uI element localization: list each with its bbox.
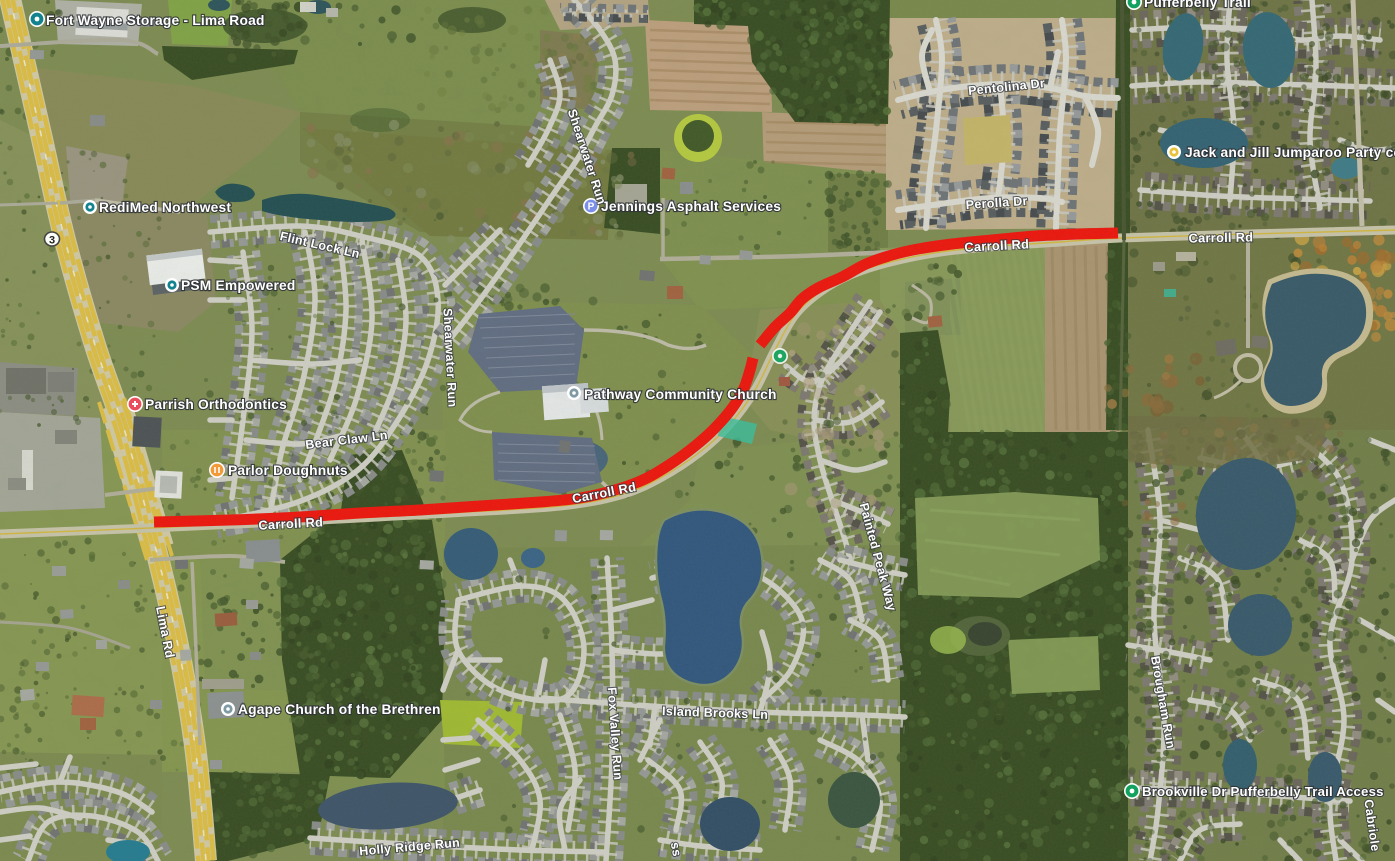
svg-text:Parlor Doughnuts: Parlor Doughnuts (228, 463, 348, 478)
svg-text:PSM Empowered: PSM Empowered (181, 278, 296, 293)
svg-text:P: P (588, 202, 595, 213)
svg-text:Parrish Orthodontics: Parrish Orthodontics (145, 397, 287, 412)
svg-text:Jack and Jill Jumparoo Party c: Jack and Jill Jumparoo Party central (1185, 145, 1395, 160)
svg-text:Brookville Dr Pufferbelly Trai: Brookville Dr Pufferbelly Trail Access (1142, 784, 1384, 799)
svg-text:RediMed Northwest: RediMed Northwest (99, 200, 231, 215)
svg-text:3: 3 (49, 235, 55, 247)
svg-text:Agape Church of the Brethren: Agape Church of the Brethren (238, 702, 441, 717)
svg-text:Pathway Community Church: Pathway Community Church (584, 387, 777, 402)
svg-text:ss: ss (668, 841, 684, 858)
svg-text:Pufferbelly Trail: Pufferbelly Trail (1144, 0, 1251, 10)
svg-text:Jennings Asphalt Services: Jennings Asphalt Services (601, 199, 781, 214)
svg-text:Fort Wayne Storage - Lima Road: Fort Wayne Storage - Lima Road (46, 13, 265, 28)
svg-text:Carroll Rd: Carroll Rd (1188, 229, 1253, 245)
